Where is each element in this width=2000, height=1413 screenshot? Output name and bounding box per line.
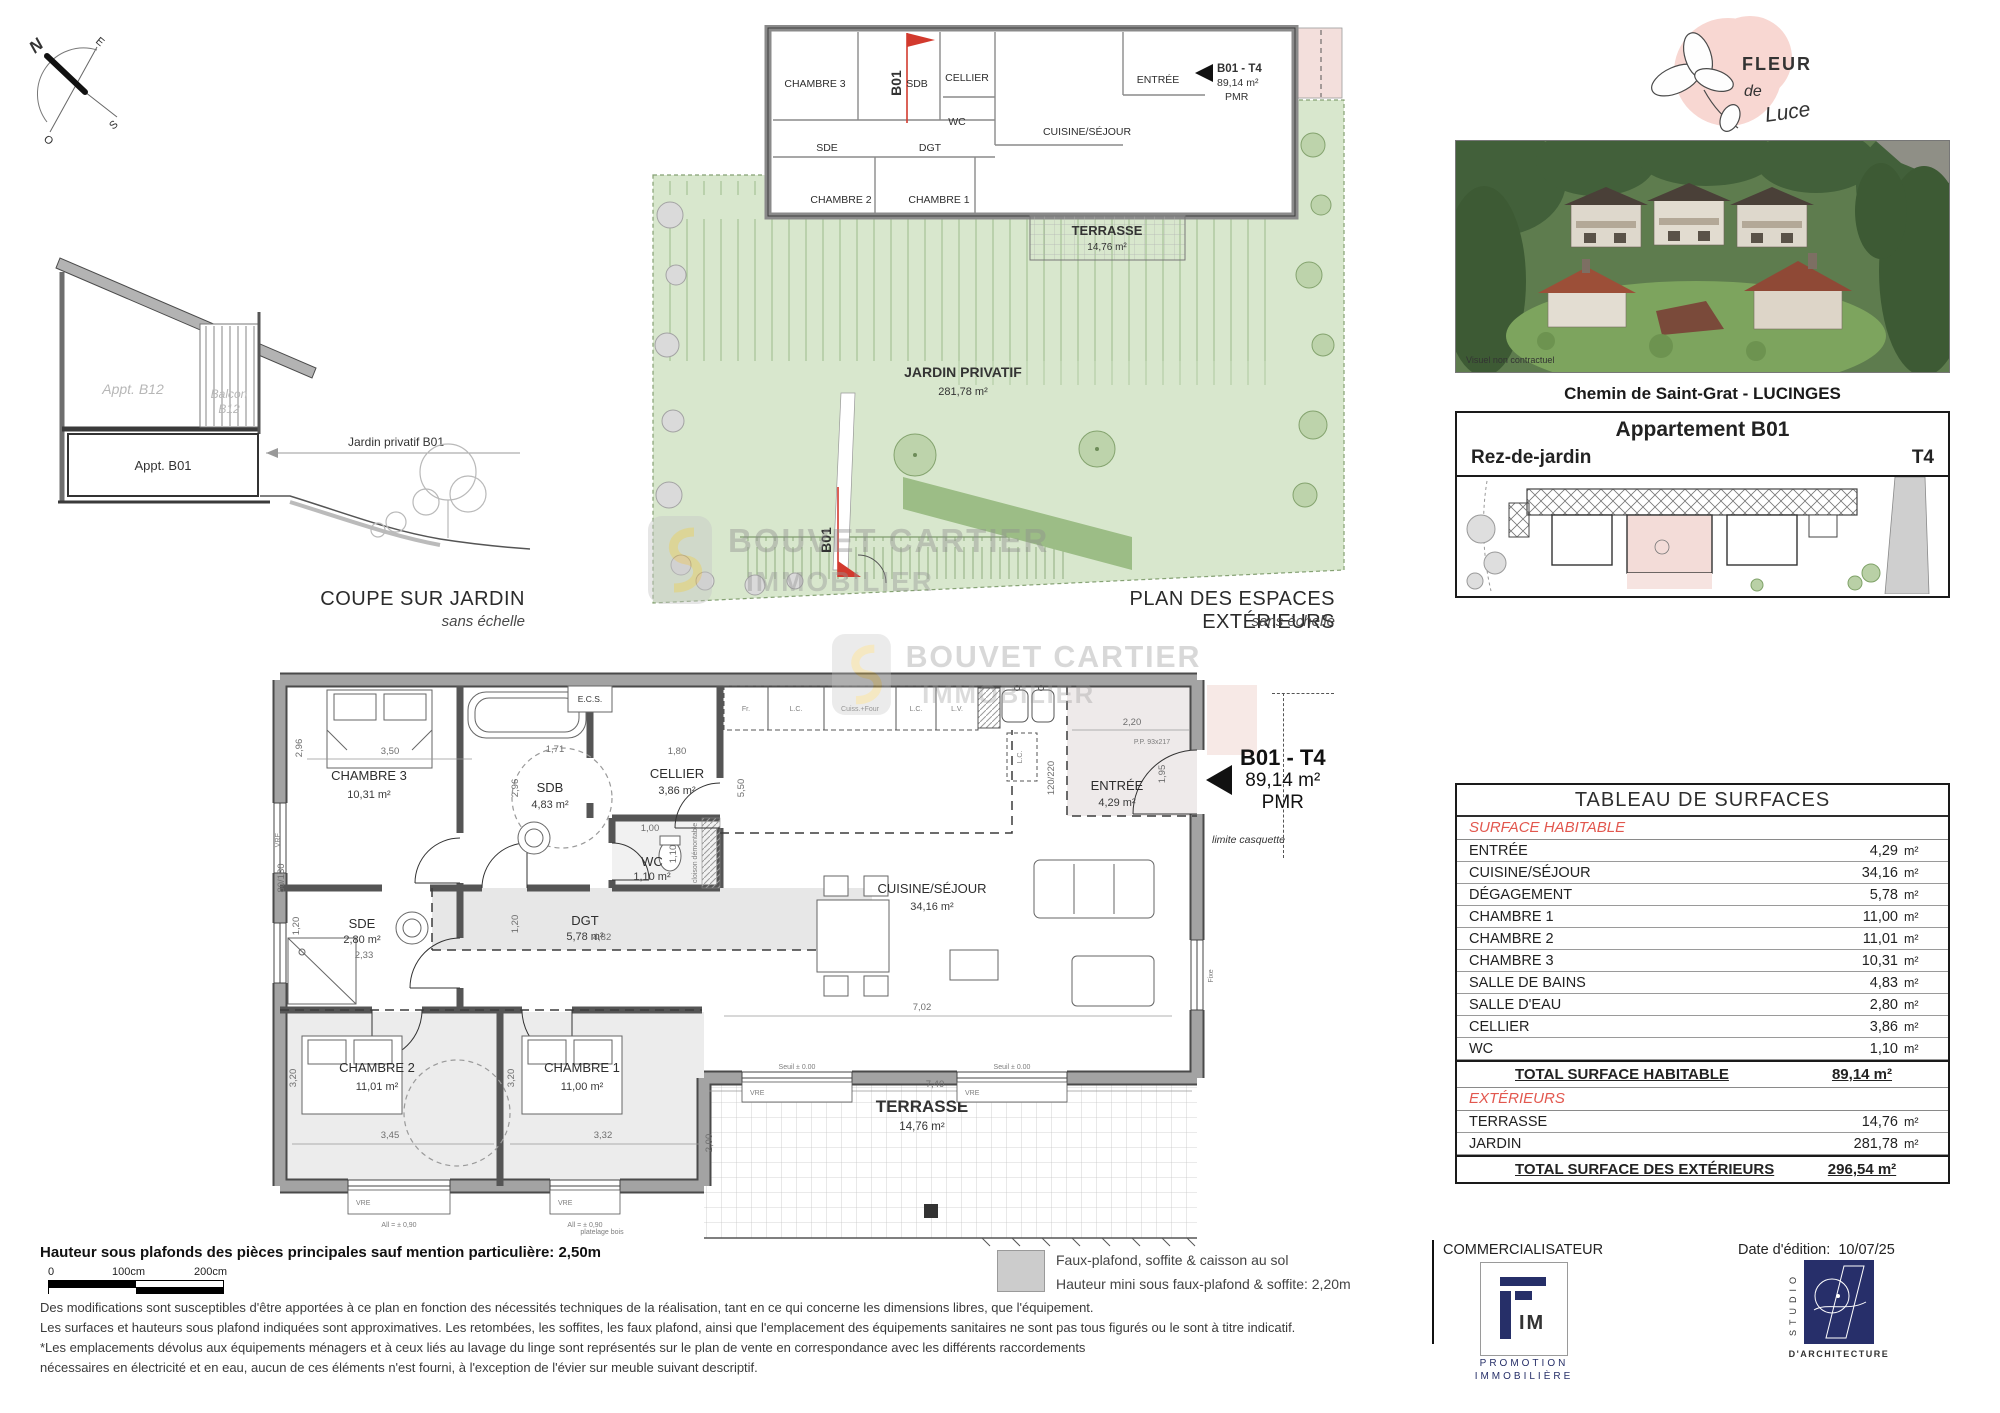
fim-sub1: PROMOTION bbox=[1462, 1358, 1586, 1369]
table-row: TERRASSE14,76m² bbox=[1457, 1111, 1948, 1133]
table-row: DÉGAGEMENT5,78m² bbox=[1457, 884, 1948, 906]
table-row: WC1,10m² bbox=[1457, 1038, 1948, 1060]
coupe-appt-b01: Appt. B01 bbox=[134, 458, 191, 473]
svg-text:2,33: 2,33 bbox=[355, 950, 374, 961]
surface-table: TABLEAU DE SURFACES SURFACE HABITABLE EN… bbox=[1455, 783, 1950, 1184]
legend-swatch bbox=[997, 1250, 1045, 1292]
svg-text:DGT: DGT bbox=[571, 913, 599, 928]
svg-text:281,78 m²: 281,78 m² bbox=[938, 386, 988, 398]
scale-200: 200cm bbox=[194, 1266, 227, 1278]
unit-area: 89,14 m² bbox=[1240, 770, 1326, 792]
kitchen-labels: Fr. L.C. Cuiss.+Four L.C. L.V. L.C. E.C.… bbox=[578, 694, 1024, 763]
svg-text:SDE: SDE bbox=[349, 916, 376, 931]
studio-vertical-text: STUDIO bbox=[1788, 1272, 1798, 1336]
svg-text:L.C.: L.C. bbox=[790, 706, 803, 713]
svg-text:CUISINE/SÉJOUR: CUISINE/SÉJOUR bbox=[1043, 125, 1132, 138]
fim-sub2: IMMOBILIÈRE bbox=[1462, 1371, 1586, 1382]
site-marker-b01-top: B01 bbox=[888, 70, 904, 96]
apartment-title: Appartement B01 bbox=[1457, 418, 1948, 442]
svg-text:CUISINE/SÉJOUR: CUISINE/SÉJOUR bbox=[877, 881, 986, 896]
svg-text:CHAMBRE 1: CHAMBRE 1 bbox=[544, 1060, 620, 1075]
svg-text:CHAMBRE 3: CHAMBRE 3 bbox=[784, 78, 845, 90]
svg-text:B01 - T4: B01 - T4 bbox=[1217, 63, 1262, 75]
table-row: SALLE D'EAU2,80m² bbox=[1457, 994, 1948, 1016]
svg-text:1,71: 1,71 bbox=[546, 744, 565, 755]
coupe-title: COUPE SUR JARDIN bbox=[245, 588, 525, 611]
table-row: JARDIN281,78m² bbox=[1457, 1133, 1948, 1155]
svg-text:ENTRÉE: ENTRÉE bbox=[1091, 778, 1144, 793]
svg-text:L.C.: L.C. bbox=[1017, 751, 1024, 764]
svg-text:L.C.: L.C. bbox=[910, 706, 923, 713]
svg-text:CELLIER: CELLIER bbox=[650, 766, 704, 781]
svg-text:WC: WC bbox=[948, 116, 966, 128]
plan-sheet: N E S O Appt. B12 Balcon B12 Appt. B01 J… bbox=[0, 0, 2000, 1413]
svg-text:SDB: SDB bbox=[906, 78, 928, 90]
table-row: CELLIER3,86m² bbox=[1457, 1016, 1948, 1038]
coupe-drawing: Appt. B12 Balcon B12 Appt. B01 Jardin pr… bbox=[28, 172, 538, 622]
logo-luce: Luce bbox=[1763, 98, 1811, 127]
limite-casquette-label: limite casquette bbox=[1212, 834, 1285, 846]
table-row: CHAMBRE 111,00m² bbox=[1457, 906, 1948, 928]
note-para3: *Les emplacements dévolus aux équipement… bbox=[40, 1340, 1085, 1355]
svg-text:Seuil ± 0.00: Seuil ± 0.00 bbox=[779, 1064, 816, 1071]
svg-text:11,00 m²: 11,00 m² bbox=[561, 1081, 604, 1093]
svg-text:VRE: VRE bbox=[965, 1090, 980, 1097]
compass-icon: N E S O bbox=[25, 22, 140, 147]
svg-text:7,02: 7,02 bbox=[913, 1002, 932, 1013]
svg-text:2,96: 2,96 bbox=[294, 739, 305, 758]
compass-n: N bbox=[25, 34, 47, 57]
table-row: CHAMBRE 211,01m² bbox=[1457, 928, 1948, 950]
svg-text:4,29 m²: 4,29 m² bbox=[1098, 797, 1136, 809]
table-row: CHAMBRE 310,31m² bbox=[1457, 950, 1948, 972]
svg-text:4,82: 4,82 bbox=[593, 932, 612, 943]
svg-text:2,80 m²: 2,80 m² bbox=[343, 934, 381, 946]
svg-text:SDE: SDE bbox=[816, 142, 838, 154]
svg-text:All = ± 0,90: All = ± 0,90 bbox=[567, 1222, 602, 1229]
svg-text:3,20: 3,20 bbox=[506, 1069, 517, 1088]
svg-text:TERRASSE: TERRASSE bbox=[876, 1097, 969, 1116]
svg-text:VRE: VRE bbox=[356, 1200, 371, 1207]
table-row: ENTRÉE4,29m² bbox=[1457, 840, 1948, 862]
svg-text:JARDIN PRIVATIF: JARDIN PRIVATIF bbox=[904, 364, 1022, 380]
scale-bar: 0 100cm 200cm bbox=[48, 1266, 224, 1294]
date-label: Date d'édition: bbox=[1738, 1242, 1830, 1258]
note-para1: Des modifications sont susceptibles d'êt… bbox=[40, 1300, 1094, 1315]
svg-text:1,10: 1,10 bbox=[668, 845, 679, 864]
fim-logo: IM bbox=[1480, 1262, 1568, 1356]
total-habitable-row: TOTAL SURFACE HABITABLE89,14 m² bbox=[1457, 1060, 1948, 1088]
date-value: 10/07/25 bbox=[1838, 1242, 1894, 1258]
svg-text:3,32: 3,32 bbox=[594, 1130, 613, 1141]
legend-line2: Hauteur mini sous faux-plafond & soffite… bbox=[1056, 1276, 1351, 1292]
unit-name: B01 - T4 bbox=[1240, 746, 1326, 770]
svg-text:1,20: 1,20 bbox=[510, 915, 521, 934]
photo-chalets bbox=[1564, 183, 1814, 247]
coupe-balcon-line1: Balcon bbox=[211, 387, 248, 401]
legend-line1: Faux-plafond, soffite & caisson au sol bbox=[1056, 1252, 1288, 1268]
studio-bottom-text: D'ARCHITECTURE bbox=[1789, 1349, 1890, 1359]
svg-text:1,10 m²: 1,10 m² bbox=[633, 871, 671, 883]
svg-text:L.V.: L.V. bbox=[951, 706, 963, 713]
svg-text:platelage bois: platelage bois bbox=[580, 1229, 624, 1236]
svg-text:CELLIER: CELLIER bbox=[945, 72, 989, 84]
coupe-balcon-line2: B12 bbox=[218, 402, 240, 416]
fleur-de-luce-logo: FLEUR de Luce bbox=[1618, 6, 1843, 141]
svg-text:CHAMBRE 3: CHAMBRE 3 bbox=[331, 768, 407, 783]
site-plan: B01 B01 CHAMBRE 3 SDB CELLIER WC ENTRÉE … bbox=[645, 25, 1345, 637]
apartment-header-box: Appartement B01 Rez-de-jardin T4 bbox=[1455, 411, 1950, 477]
table-row: CUISINE/SÉJOUR34,16m² bbox=[1457, 862, 1948, 884]
svg-text:14,76 m²: 14,76 m² bbox=[899, 1121, 945, 1133]
surface-table-title: TABLEAU DE SURFACES bbox=[1457, 785, 1948, 817]
svg-text:7,40: 7,40 bbox=[926, 1079, 945, 1090]
svg-text:120/220: 120/220 bbox=[1046, 761, 1057, 795]
svg-text:WC: WC bbox=[641, 854, 663, 869]
svg-text:DGT: DGT bbox=[919, 142, 942, 154]
svg-text:All = ± 0,90: All = ± 0,90 bbox=[381, 1222, 416, 1229]
svg-text:SDB: SDB bbox=[537, 780, 564, 795]
svg-text:Fixe: Fixe bbox=[1208, 969, 1215, 982]
note-para2: Les surfaces et hauteurs sous plafond in… bbox=[40, 1320, 1295, 1335]
compass-e: E bbox=[93, 35, 106, 49]
svg-text:VRE: VRE bbox=[558, 1200, 573, 1207]
project-photo: Visuel non contractuel bbox=[1455, 140, 1950, 373]
apartment-level: Rez-de-jardin bbox=[1471, 447, 1591, 469]
location-plan-box bbox=[1455, 477, 1950, 598]
scale-100: 100cm bbox=[112, 1266, 145, 1278]
svg-text:11,01 m²: 11,01 m² bbox=[356, 1081, 399, 1093]
svg-text:10,31 m²: 10,31 m² bbox=[347, 789, 391, 801]
svg-text:VRE: VRE bbox=[750, 1090, 765, 1097]
svg-text:PMR: PMR bbox=[1225, 91, 1249, 103]
fim-im-text: IM bbox=[1519, 1312, 1545, 1334]
unit-pmr: PMR bbox=[1240, 792, 1326, 814]
studio-architecture-logo: STUDIO D'ARCHITECTURE bbox=[1786, 1258, 1896, 1378]
commercialisateur-label: COMMERCIALISATEUR bbox=[1443, 1242, 1603, 1258]
main-floor-plan: CHAMBRE 3 10,31 m² SDB 4,83 m² CELLIER 3… bbox=[272, 638, 1217, 1250]
photo-caption: Visuel non contractuel bbox=[1466, 355, 1554, 365]
svg-text:1,80: 1,80 bbox=[668, 746, 687, 757]
guide-dash-h bbox=[1272, 693, 1334, 694]
arrow-left-icon bbox=[1206, 765, 1232, 795]
svg-text:TERRASSE: TERRASSE bbox=[1072, 223, 1143, 238]
surface-habitable-header: SURFACE HABITABLE bbox=[1457, 817, 1948, 840]
svg-text:Cuiss.+Four: Cuiss.+Four bbox=[841, 706, 880, 713]
svg-text:2,96: 2,96 bbox=[510, 779, 521, 798]
footer-divider bbox=[1432, 1240, 1434, 1344]
svg-text:3,20: 3,20 bbox=[288, 1069, 299, 1088]
logo-fleur: FLEUR bbox=[1742, 54, 1812, 74]
logo-de: de bbox=[1744, 83, 1762, 100]
svg-text:CHAMBRE 2: CHAMBRE 2 bbox=[810, 194, 871, 206]
svg-text:ENTRÉE: ENTRÉE bbox=[1137, 73, 1180, 86]
svg-text:4,83 m²: 4,83 m² bbox=[531, 799, 569, 811]
scale-0: 0 bbox=[48, 1266, 54, 1278]
compass-s: S bbox=[107, 118, 120, 132]
table-row: SALLE DE BAINS4,83m² bbox=[1457, 972, 1948, 994]
site-plan-subtitle: sans échelle bbox=[1035, 613, 1335, 630]
svg-text:VRE: VRE bbox=[275, 832, 282, 847]
svg-text:2,00: 2,00 bbox=[704, 1134, 715, 1153]
svg-text:3,86 m²: 3,86 m² bbox=[658, 785, 696, 797]
apartment-type: T4 bbox=[1912, 447, 1934, 469]
svg-text:1,00: 1,00 bbox=[641, 823, 660, 834]
svg-text:3,45: 3,45 bbox=[381, 1130, 400, 1141]
svg-text:Fr.: Fr. bbox=[742, 706, 750, 713]
svg-text:80/130: 80/130 bbox=[276, 863, 287, 892]
coupe-subtitle: sans échelle bbox=[245, 613, 525, 630]
svg-text:E.C.S.: E.C.S. bbox=[578, 694, 603, 704]
svg-text:1,20: 1,20 bbox=[291, 917, 302, 936]
svg-text:3,50: 3,50 bbox=[381, 746, 400, 757]
svg-text:Seuil ± 0.00: Seuil ± 0.00 bbox=[994, 1064, 1031, 1071]
svg-text:1,95: 1,95 bbox=[1157, 765, 1168, 784]
svg-text:CHAMBRE 2: CHAMBRE 2 bbox=[339, 1060, 415, 1075]
exterieurs-header: EXTÉRIEURS bbox=[1457, 1088, 1948, 1111]
unit-annotation: B01 - T4 89,14 m² PMR bbox=[1206, 746, 1326, 814]
svg-text:89,14 m²: 89,14 m² bbox=[1217, 77, 1259, 89]
site-marker-b01-bottom: B01 bbox=[818, 527, 834, 553]
compass-o: O bbox=[41, 133, 56, 147]
note-para4: nécessaires en électricité et en eau, au… bbox=[40, 1360, 758, 1375]
svg-text:CHAMBRE 1: CHAMBRE 1 bbox=[908, 194, 969, 206]
address: Chemin de Saint-Grat - LUCINGES bbox=[1455, 384, 1950, 404]
svg-text:2,20: 2,20 bbox=[1123, 717, 1142, 728]
svg-text:cloison démontable: cloison démontable bbox=[692, 823, 699, 883]
coupe-appt-b12: Appt. B12 bbox=[101, 381, 164, 397]
svg-text:34,16 m²: 34,16 m² bbox=[910, 901, 954, 913]
edition-date: Date d'édition: 10/07/25 bbox=[1738, 1242, 1895, 1258]
coupe-jardin-label: Jardin privatif B01 bbox=[348, 435, 444, 449]
total-exterieurs-row: TOTAL SURFACE DES EXTÉRIEURS296,54 m² bbox=[1457, 1155, 1948, 1182]
svg-text:P.P. 93x217: P.P. 93x217 bbox=[1134, 739, 1170, 746]
svg-text:14,76 m²: 14,76 m² bbox=[1087, 242, 1127, 253]
svg-text:5,50: 5,50 bbox=[736, 779, 747, 798]
